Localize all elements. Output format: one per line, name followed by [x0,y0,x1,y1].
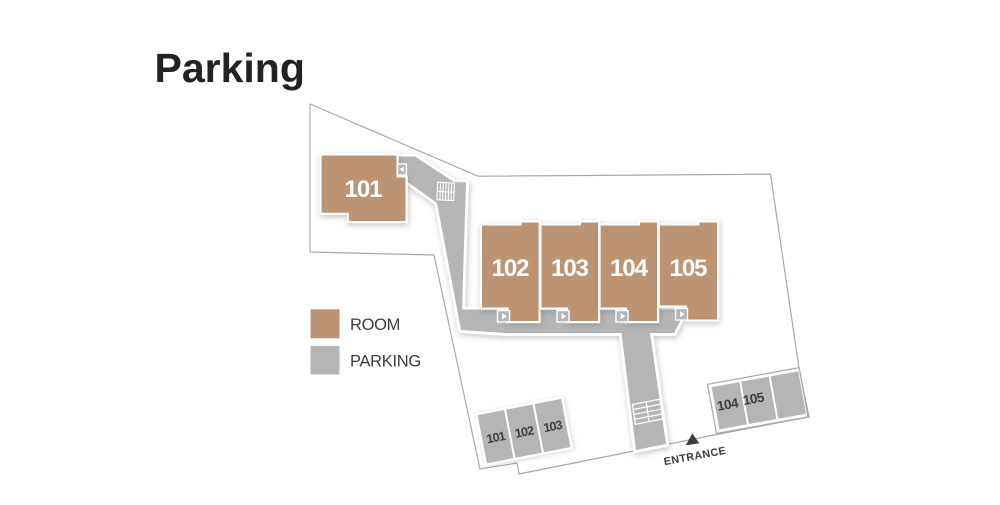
svg-text:PARKING: PARKING [350,353,421,371]
svg-text:ENTRANCE: ENTRANCE [663,445,727,468]
svg-text:101: 101 [344,176,382,203]
svg-text:102: 102 [491,255,529,282]
svg-text:ROOM: ROOM [350,316,400,334]
svg-text:104: 104 [610,255,649,282]
svg-text:105: 105 [669,255,707,282]
svg-text:103: 103 [551,255,589,282]
svg-text:Parking: Parking [155,45,305,91]
